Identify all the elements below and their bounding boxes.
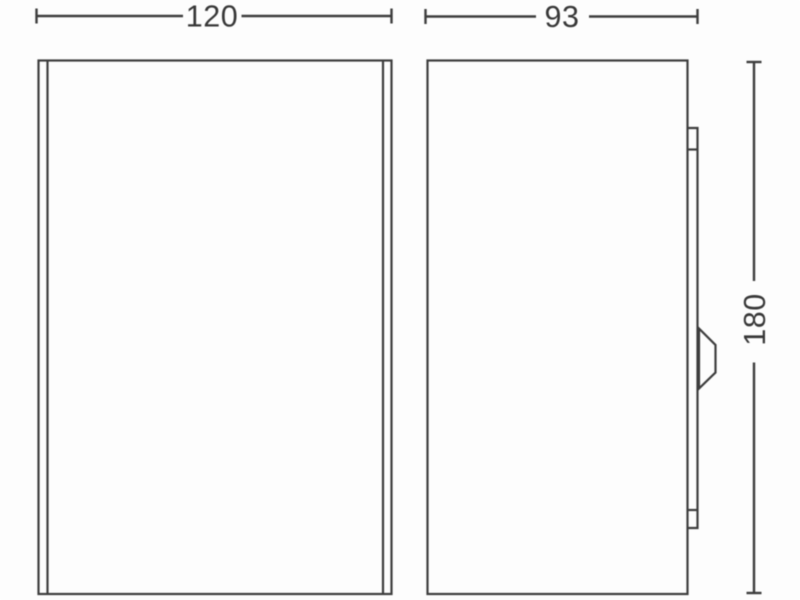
- svg-text:93: 93: [545, 0, 580, 34]
- svg-text:180: 180: [738, 293, 772, 345]
- svg-text:120: 120: [186, 0, 238, 34]
